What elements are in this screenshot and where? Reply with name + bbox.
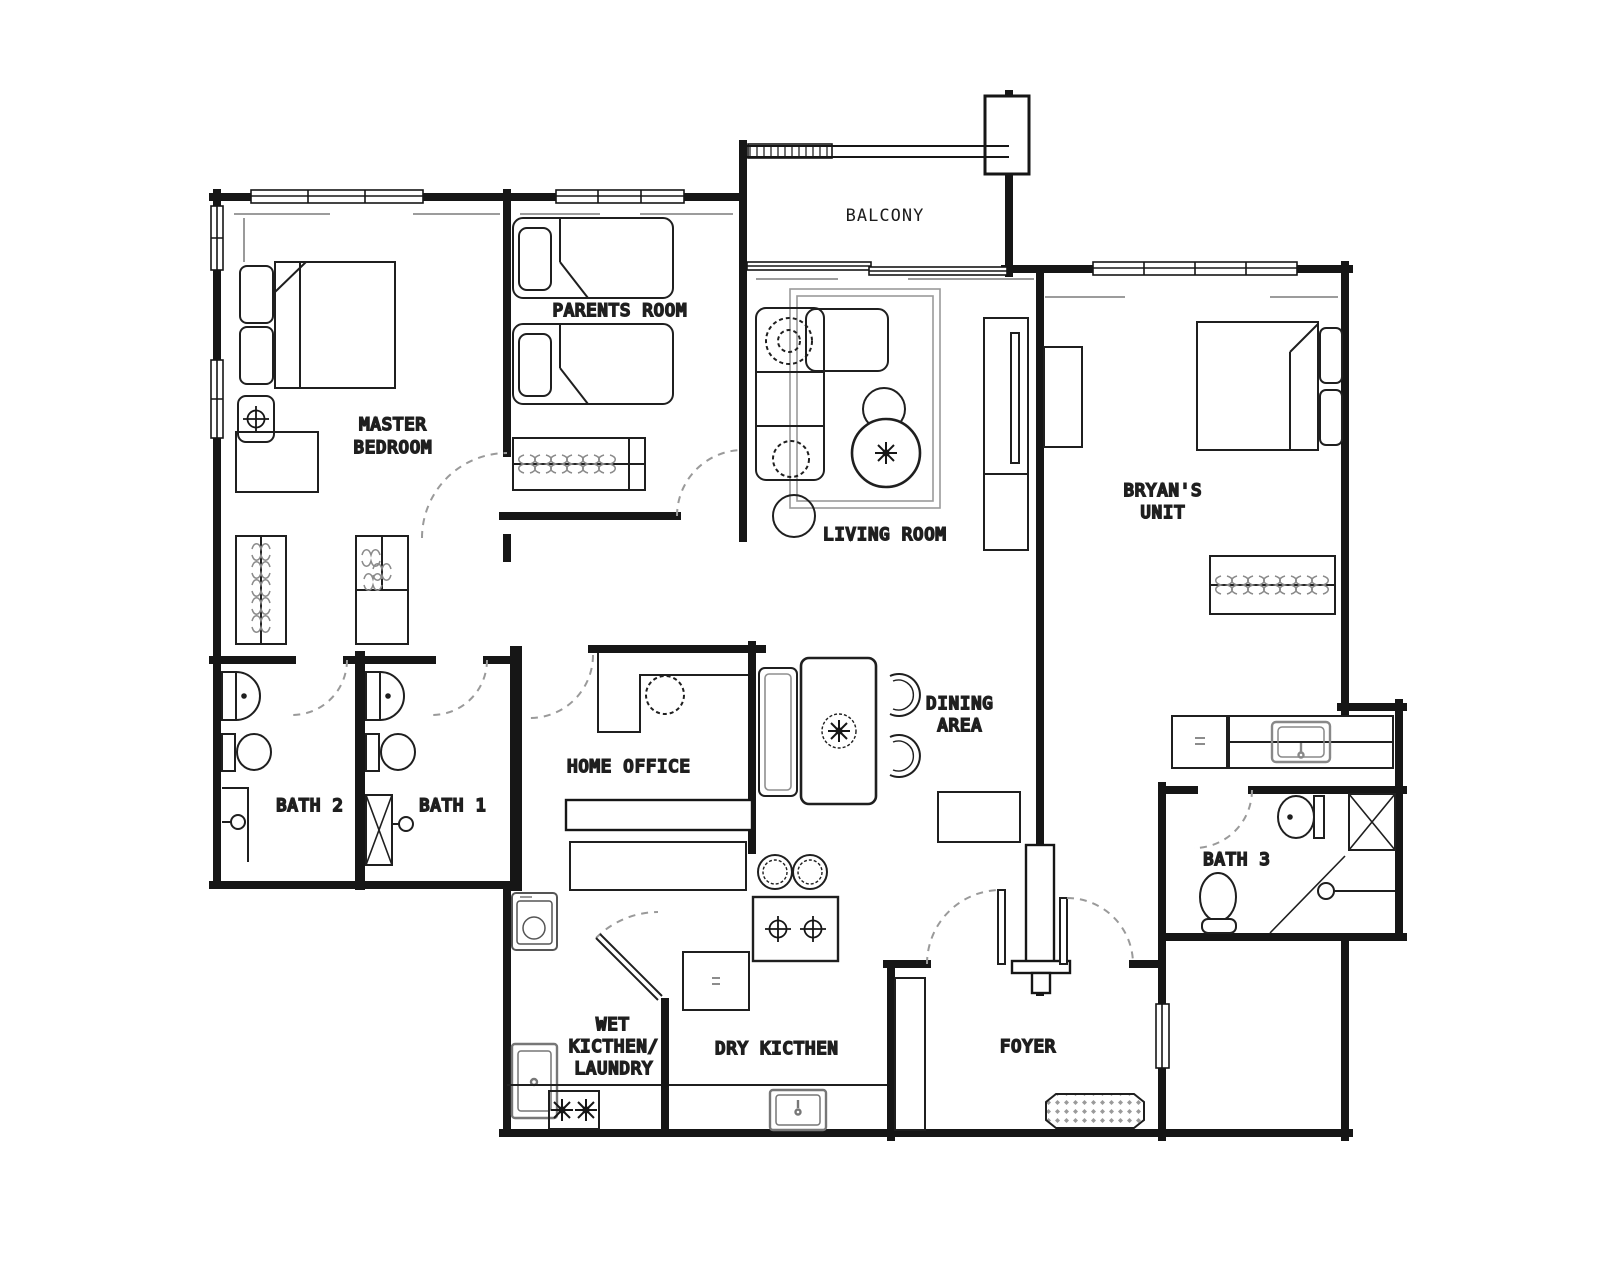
shower-icon [392, 817, 413, 831]
room-balcony: BALCONY [846, 206, 925, 226]
window-left-wall-1 [211, 206, 223, 270]
floor-plan-drawing: MASTER BEDROOM PARENTS ROOM [0, 0, 1600, 1280]
room-dry-kitchen: DRY KICTHEN [669, 952, 887, 1130]
wardrobe-icon [236, 536, 286, 644]
bath1-door-swing [432, 660, 487, 715]
room-dining-area: DINING AREA [753, 658, 1020, 961]
wall-details [566, 96, 1070, 993]
master-bedroom-label-1: MASTER [359, 415, 426, 435]
room-bryans-unit: BRYAN'S UNIT [1044, 322, 1393, 768]
desk-icon [598, 653, 748, 732]
room-bath-2: BATH 2 [222, 672, 344, 862]
toilet-icon [1278, 796, 1324, 838]
entry-pier [1026, 845, 1054, 963]
home-office-label: HOME OFFICE [567, 757, 691, 777]
bryans-unit-label-2: UNIT [1141, 503, 1186, 523]
window-bryans-top [1093, 262, 1297, 275]
balcony-railing [743, 144, 1009, 158]
sink-icon [770, 1090, 826, 1130]
single-bed-icon [513, 218, 673, 298]
bath2-door-swing [292, 660, 347, 715]
bryans-unit-label-1: BRYAN'S [1124, 481, 1203, 501]
room-parents-room: PARENTS ROOM [513, 218, 687, 490]
cabinet-icon [938, 792, 1020, 842]
double-bed-icon [1197, 322, 1342, 450]
interior-walls [213, 193, 1403, 1137]
round-coffee-table-icon [852, 419, 920, 487]
bench-icon [759, 668, 797, 796]
dining-area-label-1: DINING [926, 694, 993, 714]
nightstand-lamp-icon [238, 396, 274, 442]
washing-machine-icon [512, 893, 557, 950]
master-door-swing [422, 453, 507, 538]
chair-icon [890, 674, 920, 716]
counter-icon [570, 842, 746, 890]
tv-console-icon [984, 318, 1028, 550]
duct-icon [366, 795, 392, 865]
wardrobe-icon [1210, 556, 1335, 614]
doormat-icon [1046, 1094, 1144, 1128]
column [985, 96, 1029, 174]
wet-kitchen-label-1: WET [596, 1015, 630, 1035]
office-chair-icon [646, 676, 684, 714]
window-foyer-right [1156, 1004, 1169, 1068]
room-living-room: LIVING ROOM [756, 289, 1028, 550]
entry-pier-stub [1032, 973, 1050, 993]
curtain-lines [234, 214, 1338, 297]
island-hob-icon [753, 897, 838, 961]
door-leaf-left [998, 890, 1005, 964]
parents-door-swing [677, 450, 743, 516]
entry-right-door-swing [1067, 898, 1133, 964]
master-bedroom-label-2: BEDROOM [354, 438, 433, 458]
home-office-door-swing [530, 655, 593, 718]
bath-1-label: BATH 1 [419, 796, 486, 816]
kitchenette-counter [1229, 716, 1393, 768]
chair-2-icon [890, 735, 920, 777]
shower-icon [222, 788, 248, 862]
wet-kitchen-label-2: KICTHEN/ [569, 1037, 659, 1057]
balcony-label: BALCONY [846, 206, 925, 226]
room-bath-1: BATH 1 [366, 672, 487, 865]
duct-icon [1349, 794, 1395, 850]
room-foyer: FOYER [895, 890, 1144, 1130]
fridge-icon [1172, 716, 1227, 768]
foyer-label: FOYER [1000, 1037, 1056, 1057]
dry-kitchen-label: DRY KICTHEN [715, 1039, 839, 1059]
bath3-door-swing [1194, 790, 1252, 848]
tv-console-icon [1044, 347, 1082, 447]
sink-icon [512, 1044, 557, 1118]
bar-stool-icon [758, 855, 827, 889]
window-parents-top [556, 190, 684, 203]
bath-2-label: BATH 2 [276, 796, 343, 816]
wet-kitchen-door-leaf [596, 934, 662, 1000]
living-room-label: LIVING ROOM [823, 525, 947, 545]
vanity-sink-icon [222, 672, 260, 720]
entry-left-door-swing [927, 890, 1001, 964]
dining-area-label-2: AREA [938, 716, 983, 736]
room-master-bedroom: MASTER BEDROOM [236, 262, 432, 644]
home-office-bottom-wall [566, 800, 752, 830]
dining-table-icon [801, 658, 876, 804]
wet-kitchen-door-swing [596, 912, 658, 938]
exterior-walls [213, 94, 1403, 1137]
door-leaf-right [1060, 898, 1067, 964]
window-master-top [251, 190, 423, 203]
vanity-sink-icon [366, 672, 404, 720]
fridge-icon [683, 952, 749, 1010]
shoe-cabinet-icon [895, 978, 925, 1130]
parents-room-label: PARENTS ROOM [553, 301, 688, 321]
room-home-office: HOME OFFICE [567, 653, 748, 777]
window-left-wall-2 [211, 360, 223, 438]
toilet-icon [366, 734, 415, 771]
shower-icon [1270, 856, 1395, 933]
floor-plan-canvas: MASTER BEDROOM PARENTS ROOM [0, 0, 1600, 1280]
walls [213, 94, 1403, 1137]
wardrobe-icon [513, 438, 645, 490]
bath-3-label: BATH 3 [1203, 850, 1270, 870]
toilet-icon [222, 734, 271, 771]
vanity-sink-icon [1200, 873, 1236, 933]
balcony-sliding-door [747, 262, 1007, 275]
room-bath-3: BATH 3 [1200, 794, 1395, 933]
wardrobe-2-icon [356, 536, 408, 644]
side-table-icon [773, 495, 815, 537]
double-bed-icon [240, 262, 395, 388]
wet-kitchen-label-3: LAUNDRY [575, 1059, 654, 1079]
single-bed-2-icon [513, 324, 673, 404]
